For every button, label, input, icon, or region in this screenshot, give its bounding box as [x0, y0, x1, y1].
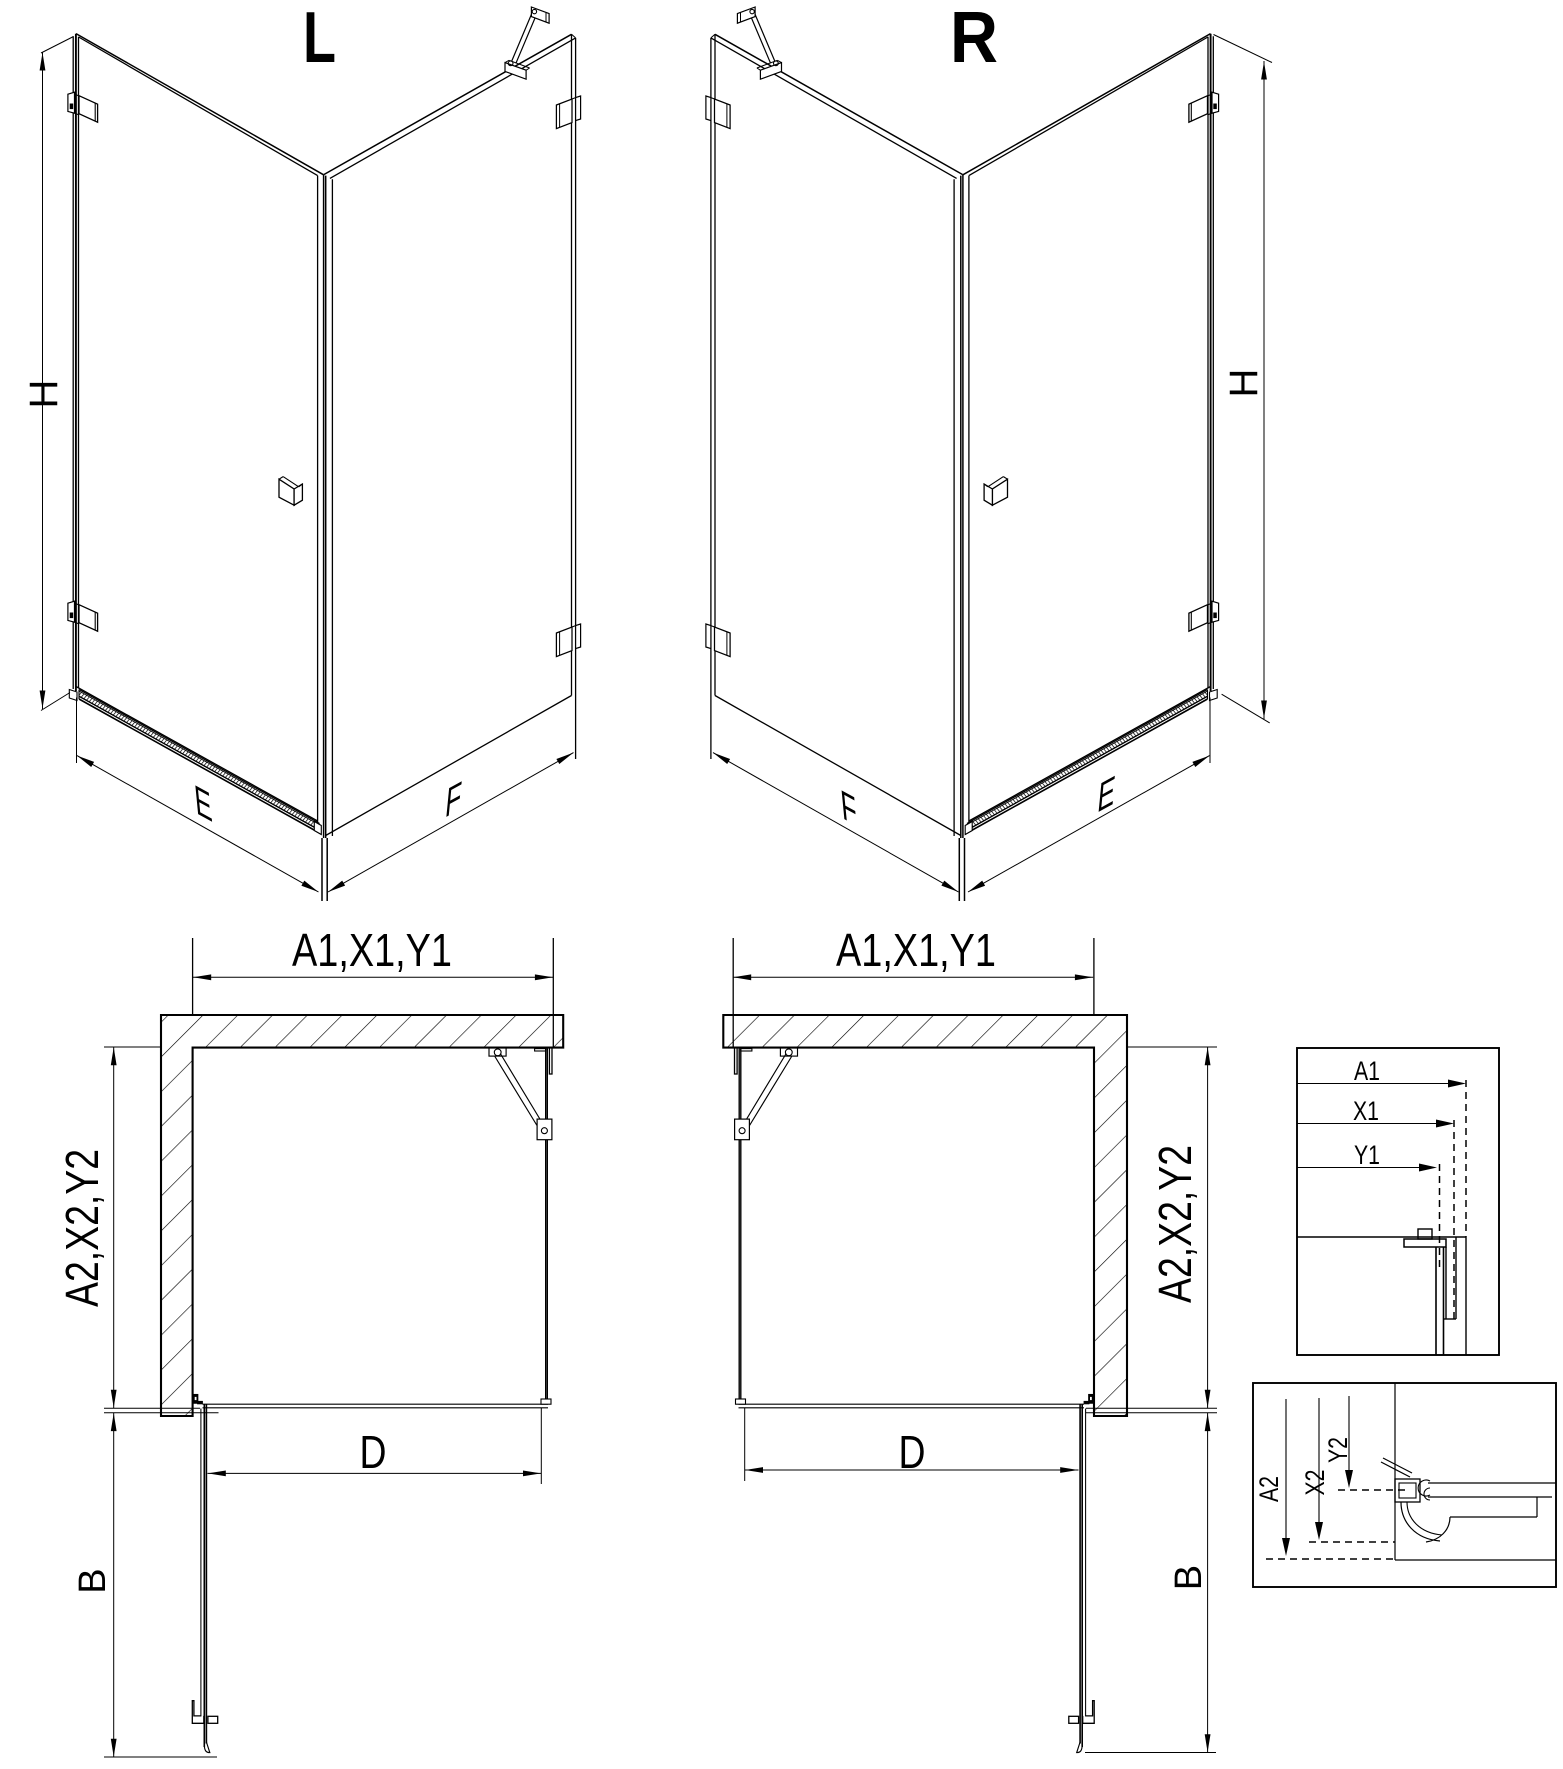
svg-text:Y2: Y2 — [1323, 1437, 1353, 1463]
svg-text:D: D — [899, 1426, 926, 1478]
svg-text:X1: X1 — [1353, 1096, 1379, 1126]
svg-text:D: D — [360, 1426, 387, 1478]
svg-text:Y1: Y1 — [1354, 1140, 1380, 1170]
svg-text:H: H — [1222, 369, 1266, 398]
svg-text:A2: A2 — [1254, 1476, 1284, 1502]
svg-text:B: B — [72, 1568, 114, 1593]
svg-text:X2: X2 — [1300, 1470, 1330, 1496]
svg-text:A1: A1 — [1354, 1056, 1380, 1086]
svg-text:H: H — [22, 380, 66, 409]
svg-text:A2,X2,Y2: A2,X2,Y2 — [1149, 1145, 1201, 1303]
svg-text:A1,X1,Y1: A1,X1,Y1 — [836, 924, 996, 976]
svg-text:A2,X2,Y2: A2,X2,Y2 — [56, 1149, 108, 1307]
svg-text:R: R — [950, 0, 998, 78]
svg-text:B: B — [1168, 1565, 1210, 1590]
svg-text:L: L — [303, 0, 336, 78]
svg-text:A1,X1,Y1: A1,X1,Y1 — [292, 924, 452, 976]
